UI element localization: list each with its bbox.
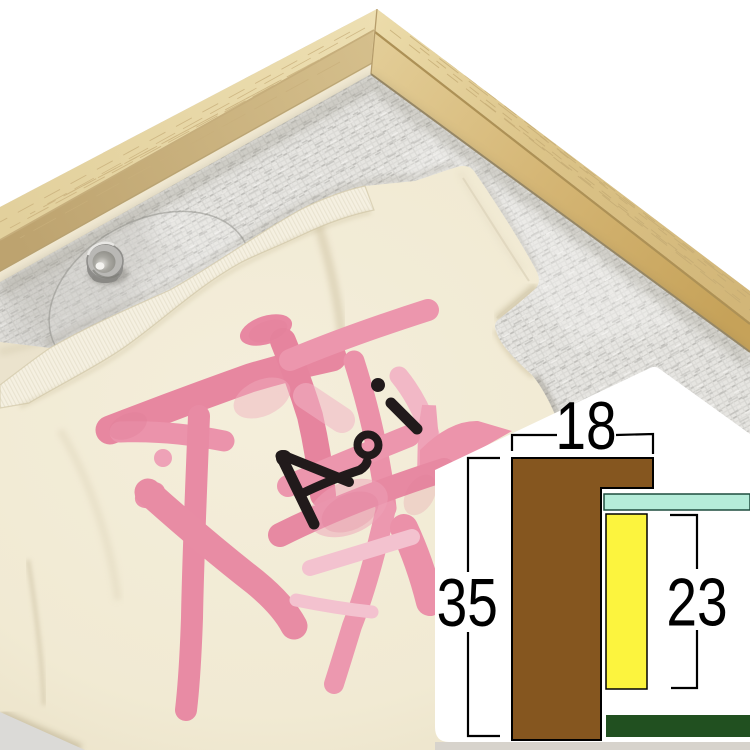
svg-text:35: 35 (437, 566, 498, 642)
svg-text:23: 23 (666, 565, 727, 641)
svg-text:18: 18 (555, 389, 616, 465)
